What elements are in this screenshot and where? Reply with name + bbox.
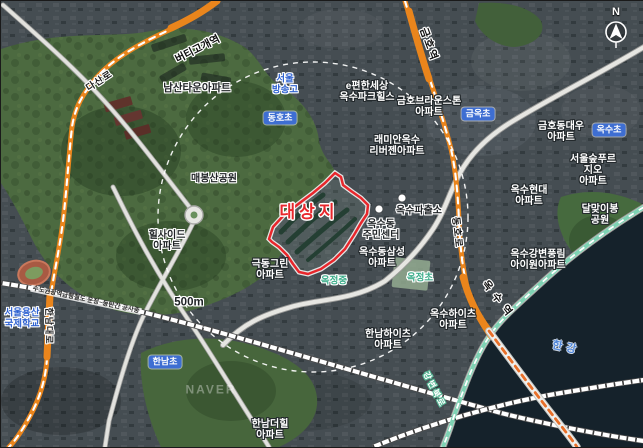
satellite-map-image: 남산타운아파트매봉산공원서울 방송고동호초e편한세상 옥수파크힐스금호브라운스톤… xyxy=(0,0,643,448)
hannam-road-segment xyxy=(47,295,50,357)
map-canvas xyxy=(1,1,643,447)
roundabout xyxy=(185,206,203,224)
